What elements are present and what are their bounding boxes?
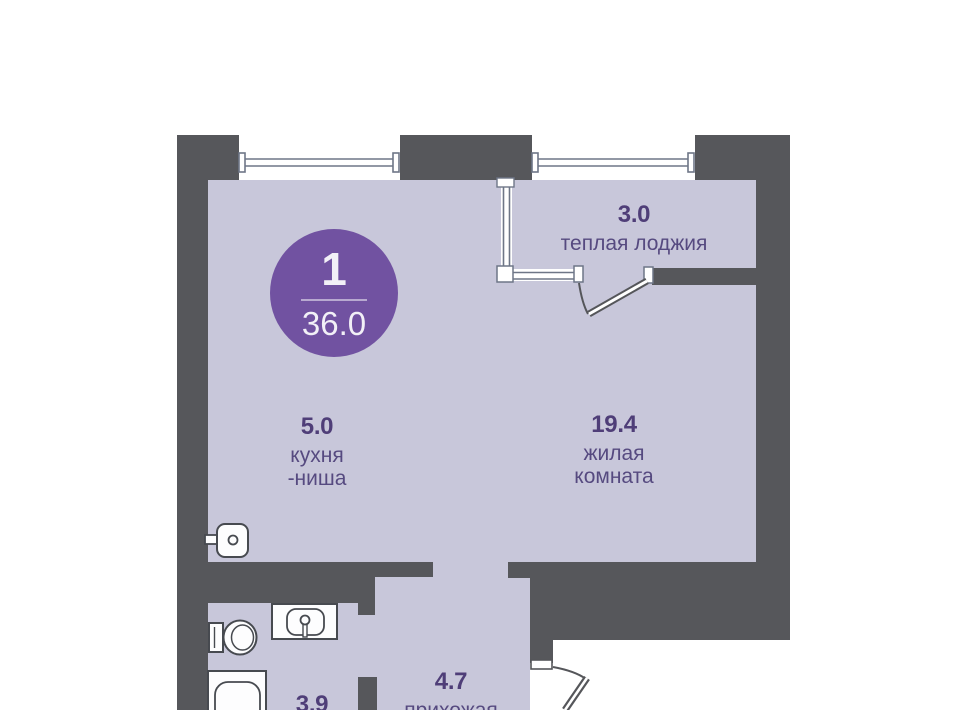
wall-entry-stub	[530, 640, 553, 663]
wall-left	[177, 135, 208, 710]
wall-bottom-block	[530, 562, 790, 640]
room-fill-passage	[433, 562, 508, 577]
wall-loggia-partition	[652, 268, 756, 285]
floor-plan: 1 36.0 3.0 теплая лоджия 5.0 кухня -ниша…	[0, 0, 960, 710]
room-name: комната	[524, 465, 704, 488]
entrance-door-icon	[531, 660, 587, 710]
room-label-bathroom: 3.9	[277, 693, 347, 710]
room-fill-bathroom-doorway	[358, 615, 377, 677]
wall-lintel	[375, 562, 433, 577]
room-area: 3.9	[277, 693, 347, 710]
room-fill-hallway-notch	[508, 578, 530, 640]
room-name: -ниша	[237, 467, 397, 490]
window-opening-right	[532, 135, 695, 180]
room-name: кухня	[237, 444, 397, 467]
room-label-loggia: 3.0 теплая лоджия	[544, 203, 724, 255]
room-label-living: 19.4 жилая комната	[524, 413, 704, 488]
room-area: 19.4	[524, 413, 704, 437]
room-area: 5.0	[237, 415, 397, 439]
wall-hallway-step	[508, 562, 530, 578]
wall-top-middle	[400, 135, 532, 180]
room-label-kitchen: 5.0 кухня -ниша	[237, 415, 397, 490]
room-label-hallway: 4.7 прихожая	[371, 670, 531, 710]
apartment-badge: 1 36.0	[270, 229, 398, 357]
room-name: жилая	[524, 442, 704, 465]
room-name: теплая лоджия	[544, 232, 724, 255]
wall-bathroom-top	[208, 562, 375, 603]
room-area: 4.7	[371, 670, 531, 694]
room-area: 3.0	[544, 203, 724, 227]
rooms-count: 1	[321, 246, 347, 292]
wall-bathroom-stub	[358, 603, 375, 615]
badge-divider	[301, 299, 367, 301]
total-area: 36.0	[302, 307, 366, 340]
window-opening-left	[239, 135, 400, 180]
room-name: прихожая	[371, 699, 531, 710]
